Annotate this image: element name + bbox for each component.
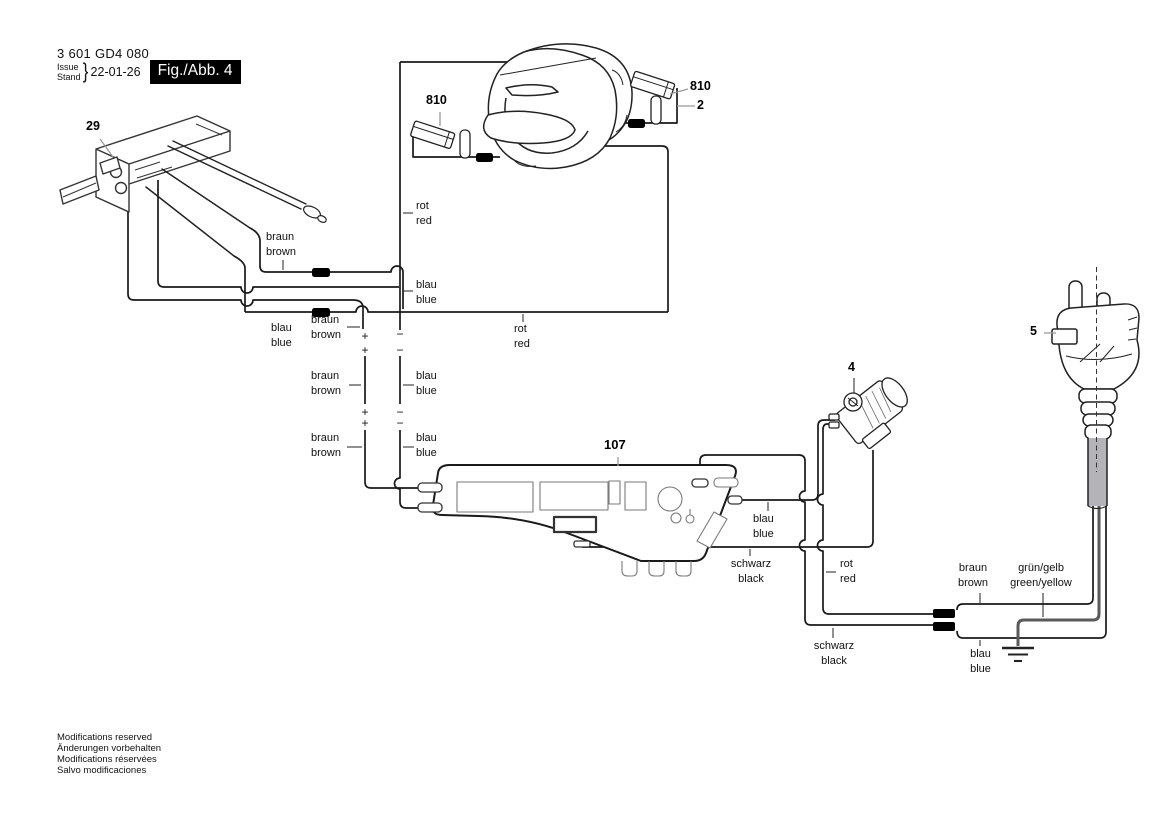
wiring-diagram-canvas: 3 601 GD4 080 Issue Stand } 22-01-26 Fig… — [0, 0, 1169, 826]
stand-label: Stand — [57, 72, 81, 82]
wire-label-braun-junction: braunbrown — [311, 313, 341, 342]
splice-mains-upper — [933, 609, 955, 618]
polarity-plus-s3: + — [357, 416, 373, 430]
module-tab-blau — [418, 503, 442, 512]
module-tab-top — [692, 479, 708, 487]
polarity-minus-s3: − — [392, 416, 408, 430]
wire-rot-suppressor-to-splice — [818, 424, 934, 614]
wire-label-rot-bottom: rotred — [514, 322, 530, 351]
diagram-line-art — [0, 0, 1169, 826]
wire-label-braun-switch: braunbrown — [266, 230, 296, 259]
wire-label-blau-mid1: blaublue — [416, 369, 437, 398]
splice-mains-lower — [933, 622, 955, 631]
brush-left-drawing — [410, 121, 470, 158]
wire-label-braun-mid1: braunbrown — [311, 369, 341, 398]
splice-braun-upper — [312, 268, 330, 277]
polarity-minus-s2t: − — [392, 343, 408, 357]
issue-label: Issue — [57, 62, 81, 72]
wire-coil-right — [577, 146, 668, 312]
polarity-plus-s2t: + — [357, 343, 373, 357]
plug-drawing — [1052, 267, 1139, 509]
middle-wire-pair — [365, 356, 418, 508]
callout-brush-left: 810 — [426, 93, 447, 107]
callout-module: 107 — [604, 437, 626, 452]
wire-label-rot-field: rotred — [416, 199, 432, 228]
field-coil-drawing — [484, 44, 632, 169]
module-tab-bottom — [574, 541, 590, 547]
module-tab-right — [728, 496, 742, 504]
suppressor-drawing — [829, 372, 920, 453]
figure-label: Fig./Abb. 4 — [150, 60, 241, 84]
issue-stand-block: Issue Stand } 22-01-26 Fig./Abb. 4 — [57, 60, 241, 84]
polarity-plus-s1: + — [357, 329, 373, 343]
callout-switch: 29 — [86, 119, 100, 133]
wire-rot-bottom — [245, 306, 668, 312]
callout-field-coil: 2 — [697, 98, 704, 112]
wire-label-blau-mid2: blaublue — [416, 431, 437, 460]
callout-suppressor: 4 — [848, 360, 855, 374]
wire-label-blau-junction: blaublue — [416, 278, 437, 307]
polarity-minus-s1: − — [392, 327, 408, 341]
wire-label-blau-left: blaublue — [271, 321, 292, 350]
callout-plug: 5 — [1030, 324, 1037, 338]
wire-label-schwarz-bottom: schwarzblack — [809, 639, 859, 668]
callout-brush-right: 810 — [690, 79, 711, 93]
issue-date: 22-01-26 — [91, 65, 141, 79]
ground-symbol — [1002, 648, 1034, 661]
wire-label-green-yellow: grün/gelbgreen/yellow — [1002, 561, 1080, 590]
wire-braun-plug — [957, 506, 1093, 610]
brace-glyph: } — [82, 60, 88, 84]
wire-label-blau-plug: blaublue — [964, 647, 997, 676]
wire-switch-lead3-down — [234, 256, 245, 312]
wire-label-blau-module: blaublue — [753, 512, 774, 541]
splice-brush-right — [628, 119, 645, 128]
wire-label-schwarz-module: schwarzblack — [725, 557, 777, 586]
wire-label-rot-right: rotred — [840, 557, 856, 586]
wire-braun-to-module — [365, 430, 418, 488]
wire-label-braun-mid2: braunbrown — [311, 431, 341, 460]
wire-label-braun-plug: braunbrown — [951, 561, 995, 590]
part-number: 3 601 GD4 080 — [57, 46, 149, 61]
module-tab-braun — [418, 483, 442, 492]
splice-brush-left — [476, 153, 493, 162]
module-drawing — [418, 465, 742, 576]
wire-blau-module-to-suppressor — [742, 420, 835, 500]
brush-right-drawing — [630, 71, 675, 124]
modifications-notice: Modifications reserved Änderungen vorbeh… — [57, 732, 161, 776]
wire-blau-to-module — [395, 430, 419, 508]
